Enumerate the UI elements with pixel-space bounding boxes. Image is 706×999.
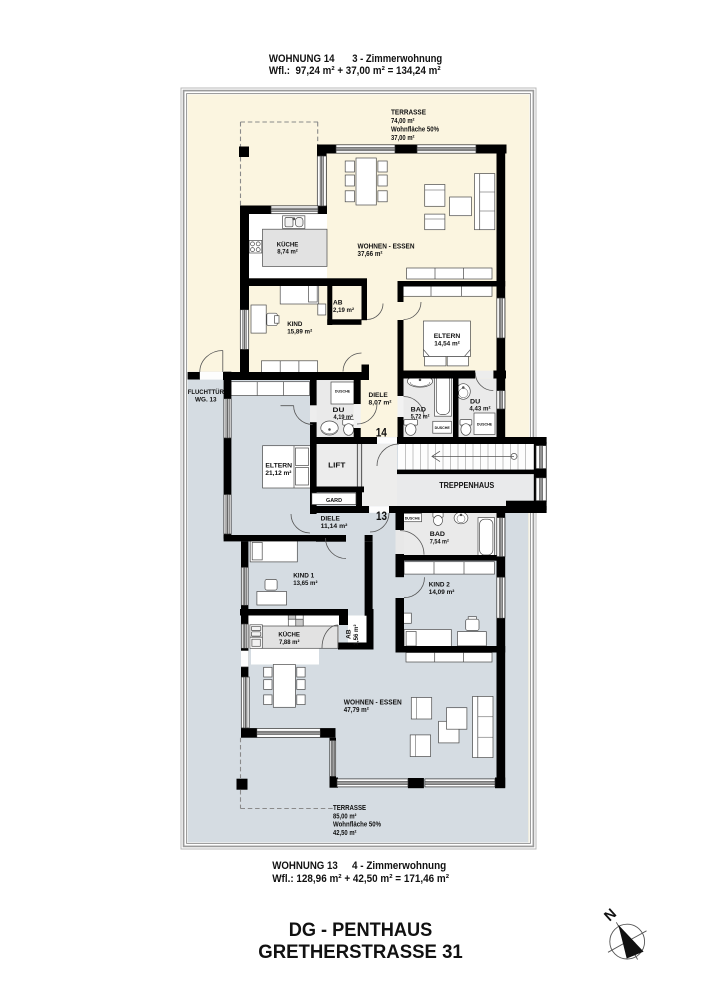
svg-text:GARD: GARD [326,498,342,504]
svg-text:ELTERN: ELTERN [265,463,292,470]
svg-text:DU: DU [333,407,345,414]
svg-text:15,89 m²: 15,89 m² [287,328,313,335]
svg-text:Wfl.: 97,24 m² + 37,00 m² = 1: Wfl.: 97,24 m² + 37,00 m² = 134,24 m² [269,65,441,77]
svg-text:7,54 m²: 7,54 m² [430,538,449,545]
svg-text:KÜCHE: KÜCHE [278,630,300,639]
svg-text:DG - PENTHAUS: DG - PENTHAUS [289,920,433,941]
svg-text:DUSCHE: DUSCHE [477,423,493,427]
svg-text:14: 14 [376,428,388,440]
svg-text:37,66 m²: 37,66 m² [358,251,384,258]
svg-text:14,09 m²: 14,09 m² [429,589,455,596]
svg-text:47,79 m²: 47,79 m² [344,707,370,714]
svg-text:WOHNEN - ESSEN: WOHNEN - ESSEN [358,244,415,251]
svg-text:8,07 m²: 8,07 m² [369,399,393,406]
svg-text:4,19 m²: 4,19 m² [334,414,353,421]
svg-text:14,54 m²: 14,54 m² [434,340,460,347]
svg-text:WOHNUNG 14: WOHNUNG 14 [269,53,335,65]
svg-text:GRETHERSTRASSE 31: GRETHERSTRASSE 31 [258,942,463,963]
svg-text:11,14 m²: 11,14 m² [321,523,349,530]
svg-text:8,74 m²: 8,74 m² [277,249,298,256]
svg-text:13: 13 [376,511,387,523]
svg-text:KÜCHE: KÜCHE [277,239,299,248]
svg-text:KIND: KIND [287,321,302,328]
svg-text:DIELE: DIELE [321,516,341,523]
svg-text:2,19 m²: 2,19 m² [333,307,355,314]
svg-text:DUSCHE: DUSCHE [405,516,421,520]
svg-text:WOHNEN - ESSEN: WOHNEN - ESSEN [344,700,402,707]
svg-text:BAD: BAD [430,531,446,538]
svg-text:DU: DU [470,398,481,405]
svg-text:5,72 m²: 5,72 m² [411,414,430,421]
svg-text:13,65 m²: 13,65 m² [293,580,318,587]
svg-text:Wfl.: 128,96 m² + 42,50 m² = 1: Wfl.: 128,96 m² + 42,50 m² = 171,46 m² [272,873,449,885]
svg-text:DUSCHE: DUSCHE [435,426,451,430]
svg-text:AB: AB [333,300,343,307]
svg-text:1,56 m²: 1,56 m² [353,625,360,646]
svg-text:BAD: BAD [411,406,427,413]
svg-text:4,43 m²: 4,43 m² [469,406,490,413]
svg-text:LIFT: LIFT [328,461,346,470]
svg-text:KIND 2: KIND 2 [429,581,450,588]
svg-text:TREPPENHAUS: TREPPENHAUS [439,481,494,490]
svg-text:ELTERN: ELTERN [434,333,461,340]
svg-text:AB: AB [346,629,353,639]
svg-text:21,12 m²: 21,12 m² [265,470,292,477]
svg-text:7,88 m²: 7,88 m² [279,639,300,646]
svg-text:FLUCHTTÜR: FLUCHTTÜR [188,389,225,396]
svg-text:WOHNUNG 13: WOHNUNG 13 [272,860,338,872]
svg-text:4 - Zimmerwohnung: 4 - Zimmerwohnung [352,860,446,872]
svg-text:42,50 m²: 42,50 m² [333,828,357,837]
svg-text:37,00 m²: 37,00 m² [391,133,415,142]
svg-text:DIELE: DIELE [369,392,389,399]
svg-text:3 - Zimmerwohnung: 3 - Zimmerwohnung [352,53,442,65]
svg-text:WG. 13: WG. 13 [195,397,217,404]
svg-text:KIND 1: KIND 1 [293,572,314,579]
svg-text:DUSCHE: DUSCHE [335,390,351,394]
